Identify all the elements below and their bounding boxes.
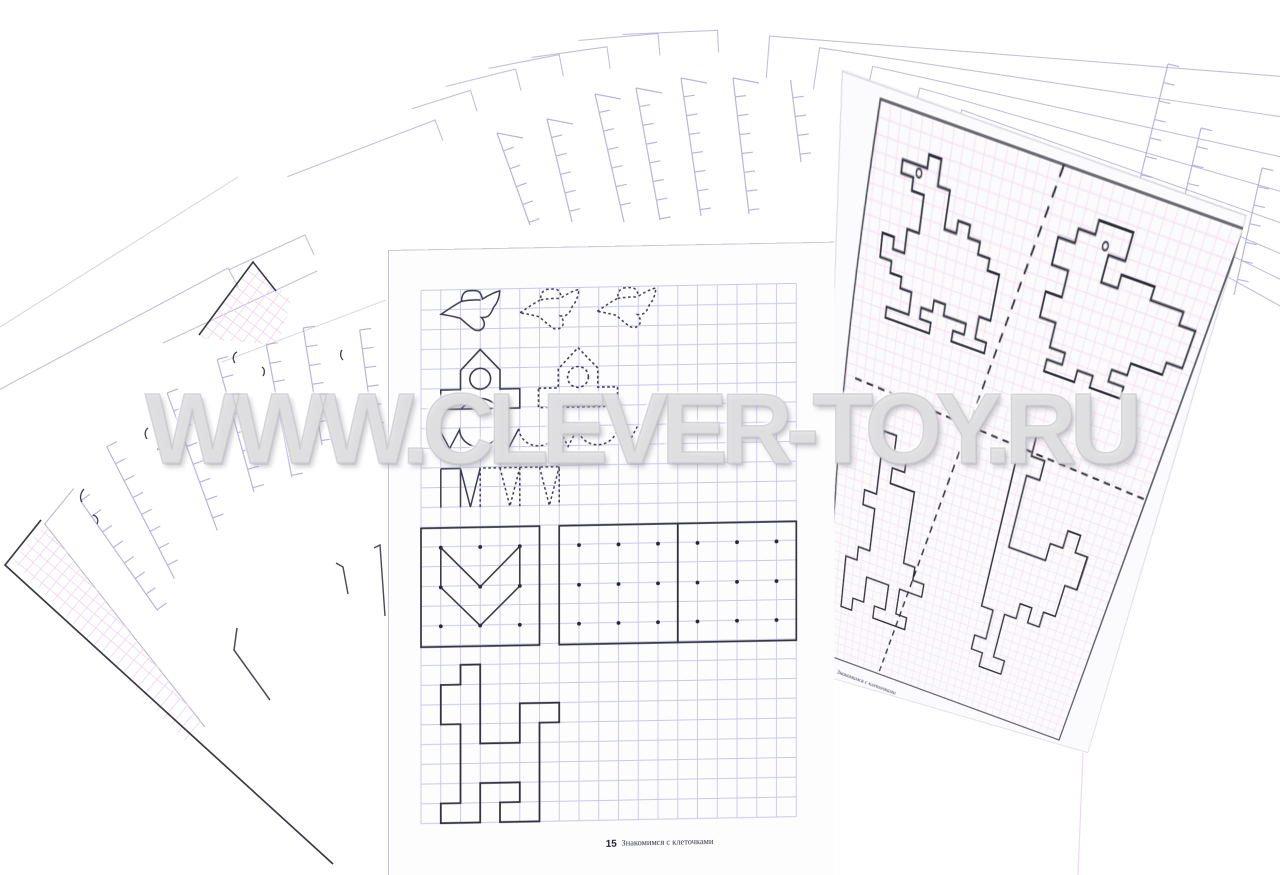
svg-text:15: 15 [606,839,618,850]
svg-text:Знакомимся с клеточками: Знакомимся с клеточками [622,837,714,848]
